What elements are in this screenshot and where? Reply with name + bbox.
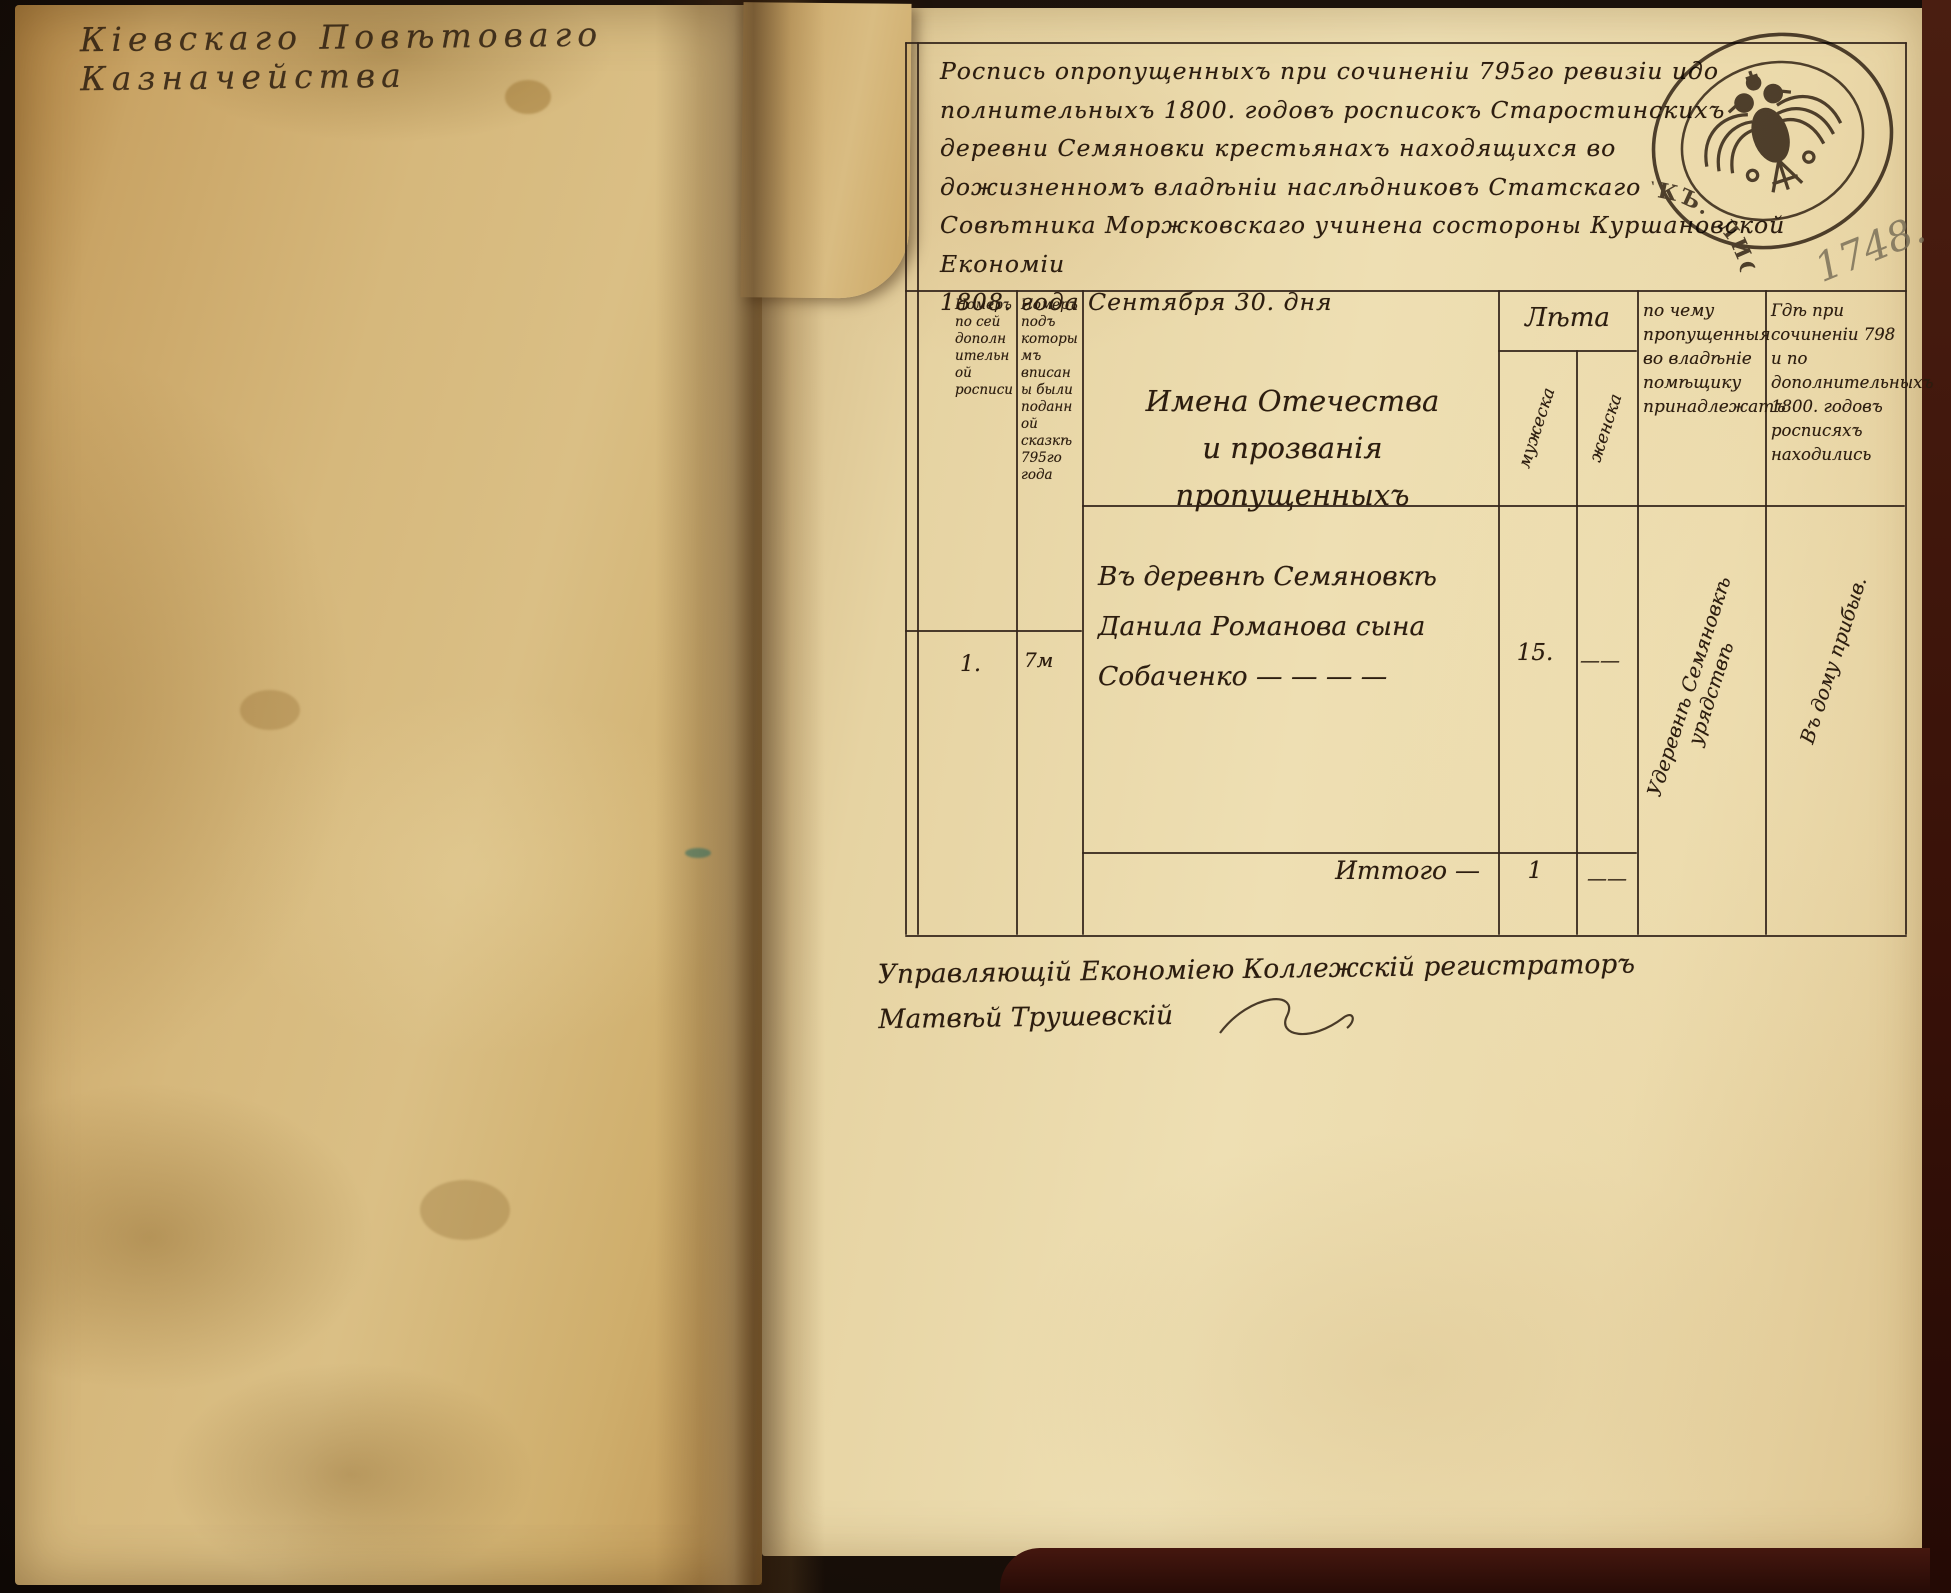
signature-flourish	[1215, 988, 1365, 1058]
paper-stain	[240, 690, 300, 730]
col-header-reason: по чему пропущенныя во владѣніе помѣщику…	[1643, 299, 1761, 419]
row-age-female: ——	[1580, 648, 1635, 672]
paper-stain	[420, 1180, 510, 1240]
table-border-line	[905, 42, 907, 935]
left-page	[15, 5, 762, 1585]
row-num-in-list: 1.	[960, 652, 1010, 677]
ink-smudge-teal	[685, 848, 711, 858]
book-photo: Кіевскаго Повѣтоваго Казначейства Роспис…	[0, 0, 1951, 1593]
table-border-line	[917, 42, 919, 935]
table-border-line	[1082, 290, 1084, 935]
book-cover-bottom-edge	[1000, 1548, 1930, 1593]
table-border-line	[1016, 290, 1018, 935]
book-gutter-shadow	[655, 0, 825, 1593]
col-header-num-in-list: Номеръ по сей дополнительной росписи	[955, 297, 1013, 399]
total-age-male: 1	[1505, 858, 1565, 884]
row-num-in-revision: 7м	[1024, 648, 1079, 672]
table-border-line	[1576, 350, 1578, 935]
col-header-names: Имена Отечества и прозванія пропущенныхъ	[1090, 378, 1495, 519]
col-header-where: Гдѣ при сочиненіи 798 и по дополнительны…	[1771, 299, 1901, 467]
table-border-line	[905, 935, 1907, 937]
table-border-line	[1498, 350, 1637, 352]
table-border-line	[905, 630, 1082, 632]
left-page-inscription: Кіевскаго Повѣтоваго Казначейства	[80, 12, 886, 98]
signature-text: Управляющій Економіею Коллежскій регистр…	[877, 938, 1898, 1042]
row-age-male: 15.	[1500, 640, 1570, 666]
table-border-line	[1498, 290, 1500, 935]
row-name-entry: Въ деревнѣ Семяновкѣ Данила Романова сын…	[1098, 552, 1498, 702]
col-header-age-group: Лѣта	[1498, 303, 1637, 333]
total-label: Иттого —	[1280, 856, 1480, 885]
table-border-line	[1765, 290, 1767, 935]
total-age-female: ——	[1587, 866, 1647, 890]
table-border-line	[1082, 852, 1637, 854]
col-header-num-in-revision: Номеръ подъ которымъ вписаны были поданн…	[1021, 297, 1079, 484]
